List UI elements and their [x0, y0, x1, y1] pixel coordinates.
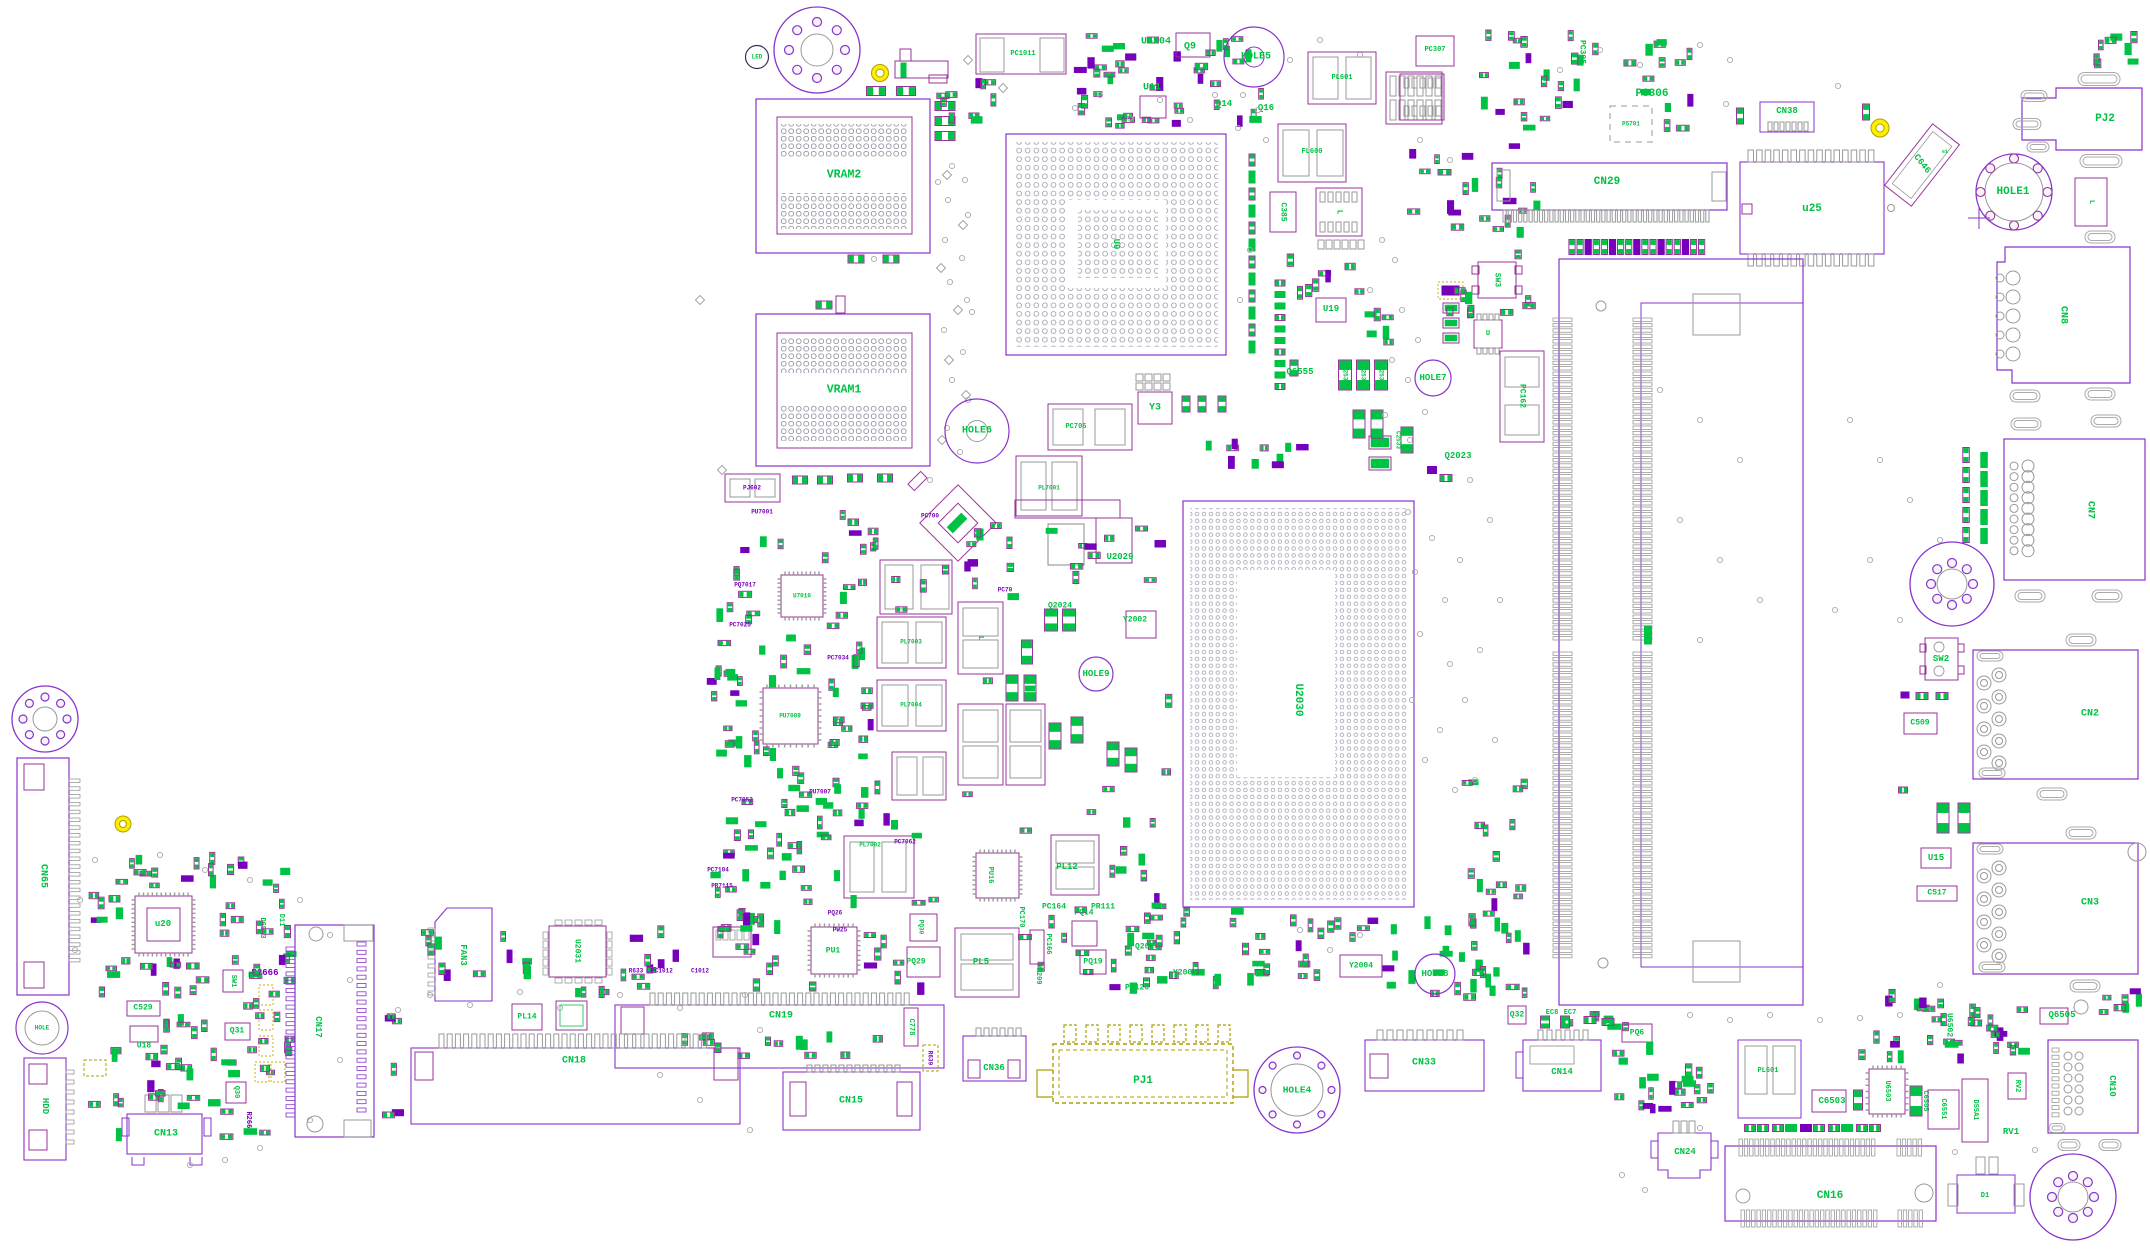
- svg-text:R633: R633: [629, 968, 644, 975]
- svg-text:PC705: PC705: [1065, 423, 1086, 431]
- svg-text:PL601: PL601: [1757, 1067, 1778, 1075]
- svg-text:CN14: CN14: [1551, 1067, 1573, 1077]
- svg-text:PC164: PC164: [1042, 903, 1066, 912]
- svg-text:PL601: PL601: [1331, 74, 1352, 82]
- svg-text:FAN3: FAN3: [458, 944, 468, 966]
- svg-text:PC7034: PC7034: [827, 655, 849, 662]
- svg-text:CN24: CN24: [1674, 1147, 1696, 1157]
- svg-text:PR126: PR126: [1125, 984, 1149, 993]
- svg-text:Q30: Q30: [232, 1086, 240, 1099]
- svg-text:CN2: CN2: [2081, 709, 2099, 720]
- svg-text:U2031: U2031: [573, 939, 582, 963]
- svg-text:Q2023: Q2023: [1444, 451, 1471, 461]
- svg-text:Q31: Q31: [230, 1027, 245, 1036]
- svg-text:Q2024: Q2024: [1048, 602, 1072, 611]
- svg-text:Y2002: Y2002: [1123, 616, 1147, 625]
- svg-text:C385: C385: [1279, 202, 1288, 221]
- svg-text:C6551: C6551: [1939, 1098, 1947, 1119]
- svg-text:Q14: Q14: [1216, 99, 1233, 109]
- svg-text:PU7001: PU7001: [751, 509, 773, 516]
- svg-text:Q32: Q32: [1510, 1011, 1525, 1020]
- svg-text:L: L: [2087, 200, 2095, 204]
- svg-text:CN18: CN18: [562, 1056, 586, 1067]
- svg-text:PU16: PU16: [986, 867, 994, 884]
- svg-text:PR111: PR111: [1091, 903, 1115, 912]
- svg-text:PC70: PC70: [998, 587, 1013, 594]
- svg-text:U6503: U6503: [1883, 1080, 1891, 1101]
- svg-text:U6502: U6502: [1945, 1013, 1954, 1037]
- svg-text:C6503: C6503: [1818, 1096, 1845, 1106]
- svg-text:EC8: EC8: [1546, 1009, 1559, 1017]
- svg-text:Q9: Q9: [1184, 42, 1196, 53]
- svg-text:RV2: RV2: [2013, 1080, 2021, 1093]
- svg-text:HOLE8: HOLE8: [1421, 969, 1448, 979]
- svg-text:PL7004: PL7004: [900, 702, 922, 709]
- svg-text:PC170: PC170: [1017, 906, 1025, 927]
- svg-text:PL5: PL5: [973, 957, 989, 967]
- svg-text:PU1: PU1: [826, 947, 841, 956]
- svg-text:CN38: CN38: [1776, 106, 1798, 116]
- svg-text:PQ6: PQ6: [1630, 1029, 1645, 1038]
- svg-text:PL14: PL14: [517, 1013, 536, 1022]
- svg-text:PC162: PC162: [1518, 384, 1527, 408]
- svg-text:SW1: SW1: [229, 975, 237, 988]
- svg-text:L: L: [1335, 210, 1344, 215]
- svg-text:U11: U11: [1143, 83, 1161, 94]
- svg-text:PL7001: PL7001: [1038, 485, 1060, 492]
- svg-text:RV1: RV1: [2003, 1127, 2020, 1137]
- svg-text:PC1012: PC1012: [651, 968, 673, 975]
- svg-text:u20: u20: [155, 919, 171, 929]
- svg-text:U2029: U2029: [1106, 552, 1133, 562]
- svg-text:EC7: EC7: [1564, 1009, 1577, 1017]
- svg-text:Q6505: Q6505: [2048, 1010, 2075, 1020]
- svg-text:PC7052: PC7052: [731, 797, 753, 804]
- svg-text:C529: C529: [133, 1004, 152, 1013]
- svg-text:C2532: C2532: [1360, 366, 1367, 384]
- svg-text:PU7007: PU7007: [809, 789, 831, 796]
- svg-text:PQ30: PQ30: [918, 920, 925, 935]
- svg-text:U7010: U7010: [793, 593, 811, 600]
- svg-text:Q6555: Q6555: [1286, 367, 1313, 377]
- svg-text:PJ602: PJ602: [743, 485, 761, 492]
- svg-text:SW3: SW3: [1493, 273, 1502, 288]
- svg-text:u25: u25: [1802, 203, 1822, 215]
- svg-text:PJ1: PJ1: [1133, 1075, 1153, 1087]
- svg-text:PC307: PC307: [1424, 46, 1445, 54]
- svg-text:U: U: [1486, 330, 1490, 338]
- svg-text:CN29: CN29: [1594, 176, 1620, 188]
- svg-text:U18: U18: [137, 1042, 152, 1051]
- svg-text:VRAM1: VRAM1: [827, 384, 862, 397]
- svg-text:CN16: CN16: [1817, 1190, 1843, 1202]
- svg-text:Y3: Y3: [1149, 403, 1161, 414]
- svg-text:PQ19: PQ19: [1083, 958, 1102, 967]
- svg-text:Y2004: Y2004: [1349, 962, 1373, 971]
- svg-text:FL600: FL600: [1301, 148, 1322, 156]
- svg-text:HOLE7: HOLE7: [1419, 373, 1446, 383]
- svg-text:PC306: PC306: [1635, 88, 1668, 100]
- svg-text:D11: D11: [277, 914, 285, 927]
- svg-text:R639: R639: [927, 1051, 934, 1066]
- svg-text:HOLE5: HOLE5: [1241, 52, 1271, 63]
- svg-text:PW25: PW25: [833, 927, 848, 934]
- svg-text:C2536: C2536: [1378, 366, 1385, 384]
- svg-text:DS5A1: DS5A1: [1971, 1099, 1979, 1120]
- svg-text:CN36: CN36: [983, 1063, 1005, 1073]
- svg-text:CN33: CN33: [1412, 1058, 1436, 1069]
- svg-text:C1012: C1012: [691, 968, 709, 975]
- svg-text:CN7: CN7: [2085, 501, 2096, 519]
- svg-text:PC700: PC700: [921, 513, 939, 520]
- svg-text:HOLE6: HOLE6: [962, 426, 992, 437]
- svg-text:PC7062: PC7062: [894, 839, 916, 846]
- svg-text:HOLE: HOLE: [35, 1025, 50, 1032]
- svg-text:CN13: CN13: [154, 1129, 178, 1140]
- svg-text:D1: D1: [1981, 1192, 1989, 1200]
- svg-text:C509: C509: [1910, 719, 1929, 728]
- svg-text:CN15: CN15: [839, 1096, 863, 1107]
- svg-text:HOLE4: HOLE4: [1283, 1085, 1312, 1096]
- svg-text:PR7115: PR7115: [711, 883, 733, 890]
- svg-text:CN8: CN8: [2058, 306, 2069, 324]
- svg-text:SW2: SW2: [1933, 654, 1949, 664]
- svg-text:Q2026: Q2026: [1135, 943, 1159, 952]
- svg-text:CN10: CN10: [2107, 1075, 2117, 1097]
- svg-text:C778: C778: [907, 1019, 915, 1036]
- svg-text:CN3: CN3: [2081, 898, 2099, 909]
- svg-text:L: L: [976, 636, 984, 640]
- svg-text:PL7003: PL7003: [900, 639, 922, 646]
- svg-text:CN17: CN17: [313, 1016, 323, 1038]
- svg-text:PQ26: PQ26: [828, 910, 843, 917]
- svg-text:PJ2: PJ2: [2095, 113, 2115, 125]
- svg-text:VRAM2: VRAM2: [827, 169, 862, 182]
- svg-text:C2533: C2533: [1395, 431, 1402, 449]
- svg-text:e1: e1: [1942, 149, 1948, 155]
- svg-text:PC166: PC166: [1044, 933, 1052, 954]
- svg-text:PQ14: PQ14: [1074, 909, 1093, 918]
- svg-text:PR209: PR209: [1034, 963, 1042, 984]
- svg-text:CN19: CN19: [769, 1011, 793, 1022]
- svg-text:U2030: U2030: [1292, 683, 1304, 716]
- svg-text:PC7104: PC7104: [707, 867, 729, 874]
- svg-text:U6504: U6504: [1141, 37, 1171, 48]
- svg-text:PC305: PC305: [1578, 40, 1587, 64]
- svg-text:P5701: P5701: [1622, 121, 1640, 128]
- svg-text:HDD: HDD: [40, 1098, 50, 1115]
- svg-text:C517: C517: [1927, 889, 1946, 898]
- svg-text:C2531: C2531: [1342, 366, 1349, 384]
- svg-text:U19: U19: [1323, 304, 1339, 314]
- svg-text:Y2003: Y2003: [1173, 969, 1197, 978]
- svg-text:PL7002: PL7002: [859, 842, 881, 849]
- svg-text:PQ29: PQ29: [906, 958, 925, 967]
- svg-text:CN65: CN65: [38, 864, 49, 888]
- svg-text:U9: U9: [1111, 239, 1121, 250]
- svg-text:HOLE1: HOLE1: [1996, 186, 2029, 198]
- svg-text:PL12: PL12: [1056, 862, 1078, 872]
- svg-text:U15: U15: [1928, 853, 1944, 863]
- svg-text:LED: LED: [752, 54, 763, 61]
- svg-text:PQ7017: PQ7017: [734, 582, 756, 589]
- svg-text:HOLE9: HOLE9: [1082, 669, 1109, 679]
- svg-text:PC7025: PC7025: [729, 622, 751, 629]
- svg-text:PU7009: PU7009: [779, 713, 801, 720]
- svg-text:PC1011: PC1011: [1010, 50, 1035, 58]
